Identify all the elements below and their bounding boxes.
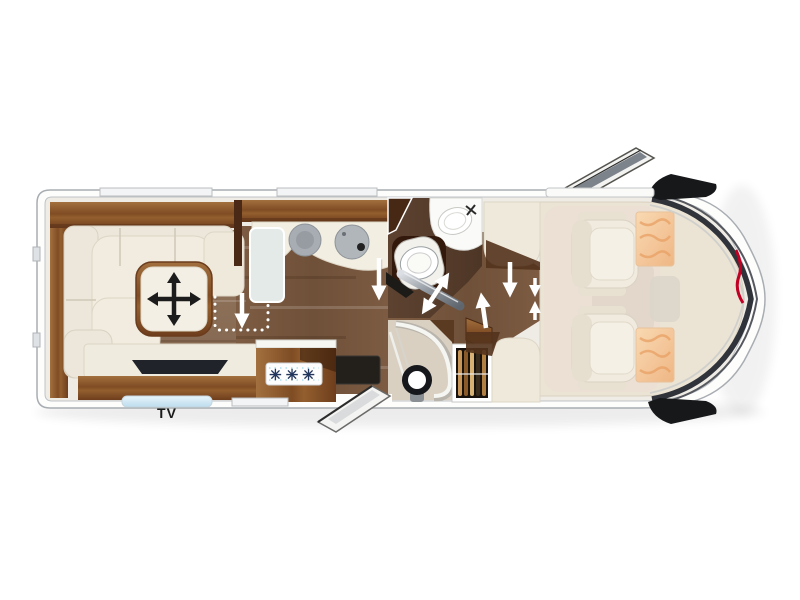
kitchen-hob [335,225,369,259]
entry-mat [330,356,380,384]
cab-seat-bottom [572,306,638,390]
dash-panel-top [636,212,674,266]
roof-window-kitchen [277,188,377,196]
cab-seat-top [572,212,638,296]
fridge: ✳✳✳ [256,340,336,402]
cab-bench-bottom [492,338,540,402]
floorplan-canvas: ✳✳✳ [0,0,800,600]
tv-label: TV [157,405,177,421]
floorplan-svg: ✳✳✳ [0,0,800,600]
dash-panel-bottom [636,328,674,382]
wing-mirror-top-icon [648,174,717,200]
shower-basin [405,368,429,392]
counter-extension [250,228,284,302]
hanging-clothes [456,350,488,396]
freezer-snowflakes-icon: ✳✳✳ [269,367,319,384]
tv-panel [132,360,228,374]
kitchen-divider-wall [234,200,242,266]
hob-knob [357,243,365,251]
lounge-table [136,262,212,336]
dash-console [650,276,680,322]
shower [388,320,454,402]
roof-window-left [100,188,212,196]
door-sill [546,188,654,197]
bottom-window [232,398,288,406]
